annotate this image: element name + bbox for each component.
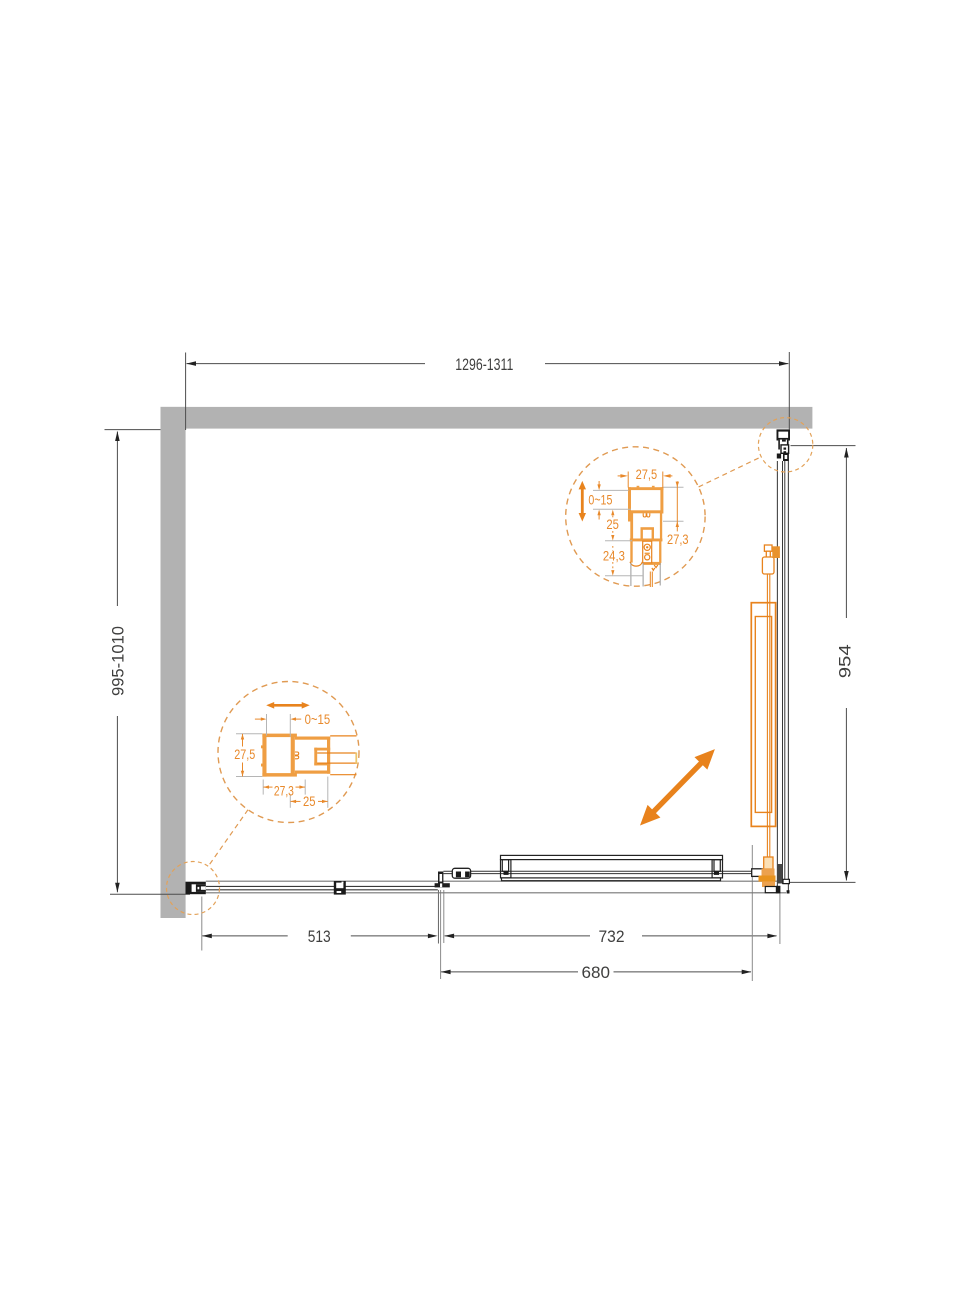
svg-text:732: 732 xyxy=(599,927,625,946)
svg-text:27,5: 27,5 xyxy=(636,466,658,482)
svg-text:24,3: 24,3 xyxy=(603,548,625,564)
svg-text:27,5: 27,5 xyxy=(234,746,255,762)
svg-text:995-1010: 995-1010 xyxy=(109,626,128,696)
svg-text:0~15: 0~15 xyxy=(588,493,612,508)
svg-text:25: 25 xyxy=(606,516,619,532)
svg-text:27,3: 27,3 xyxy=(667,531,689,547)
svg-text:680: 680 xyxy=(582,963,611,982)
svg-text:25: 25 xyxy=(303,793,316,809)
svg-text:0~15: 0~15 xyxy=(305,712,331,727)
svg-text:1296-1311: 1296-1311 xyxy=(455,355,513,374)
svg-text:27,3: 27,3 xyxy=(274,782,294,798)
svg-text:513: 513 xyxy=(308,927,331,946)
svg-text:954: 954 xyxy=(835,644,854,678)
